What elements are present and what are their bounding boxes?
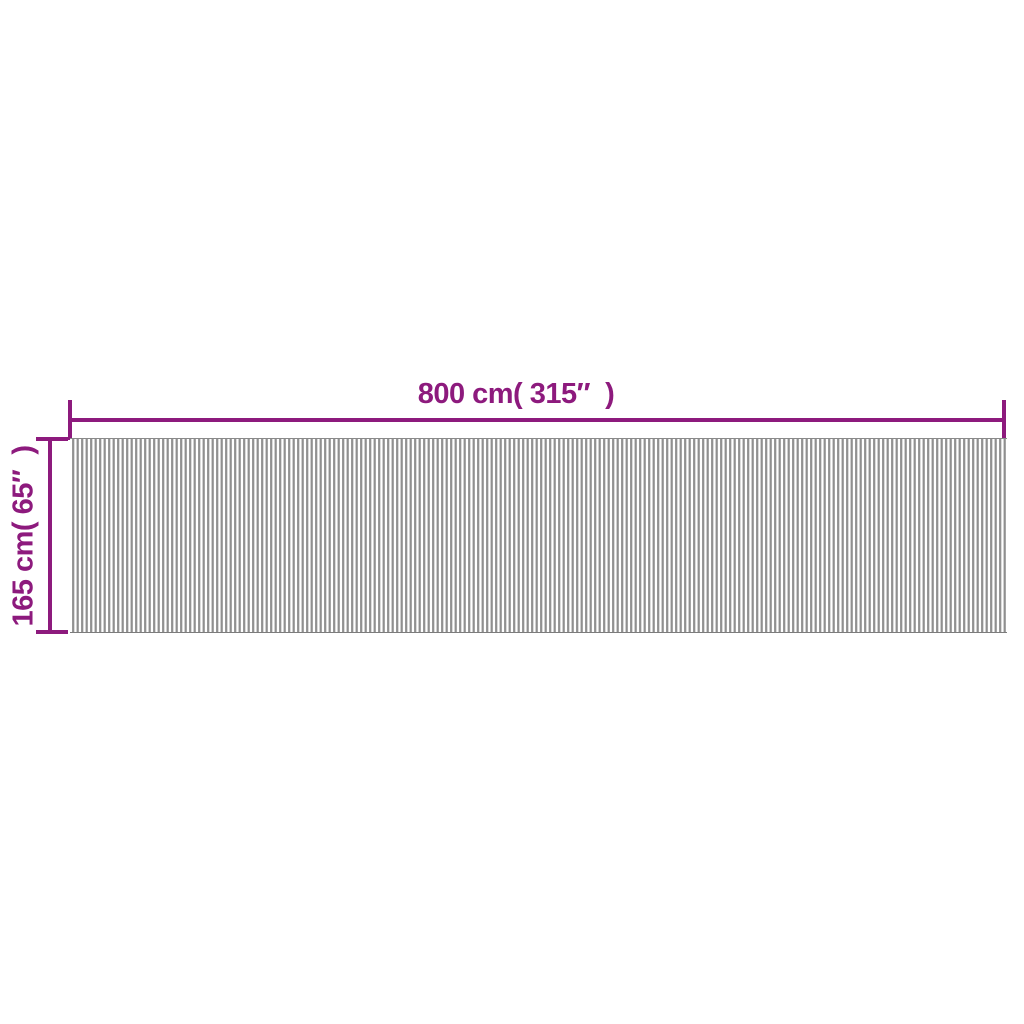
height-dimension-line <box>48 439 52 632</box>
width-dimension-line <box>70 418 1006 422</box>
width-dimension-tick-left <box>68 400 72 440</box>
product-dimension-diagram: 800 cm( 315″ ) 165 cm( 65″ ) <box>0 0 1024 1024</box>
width-dimension-tick-right <box>1002 400 1006 440</box>
striped-mat-image <box>70 438 1007 633</box>
width-dimension-label: 800 cm( 315″ ) <box>418 380 615 409</box>
height-dimension-tick-top <box>36 437 68 441</box>
height-dimension-label: 165 cm( 65″ ) <box>10 446 39 627</box>
height-dimension-tick-bottom <box>36 630 68 634</box>
